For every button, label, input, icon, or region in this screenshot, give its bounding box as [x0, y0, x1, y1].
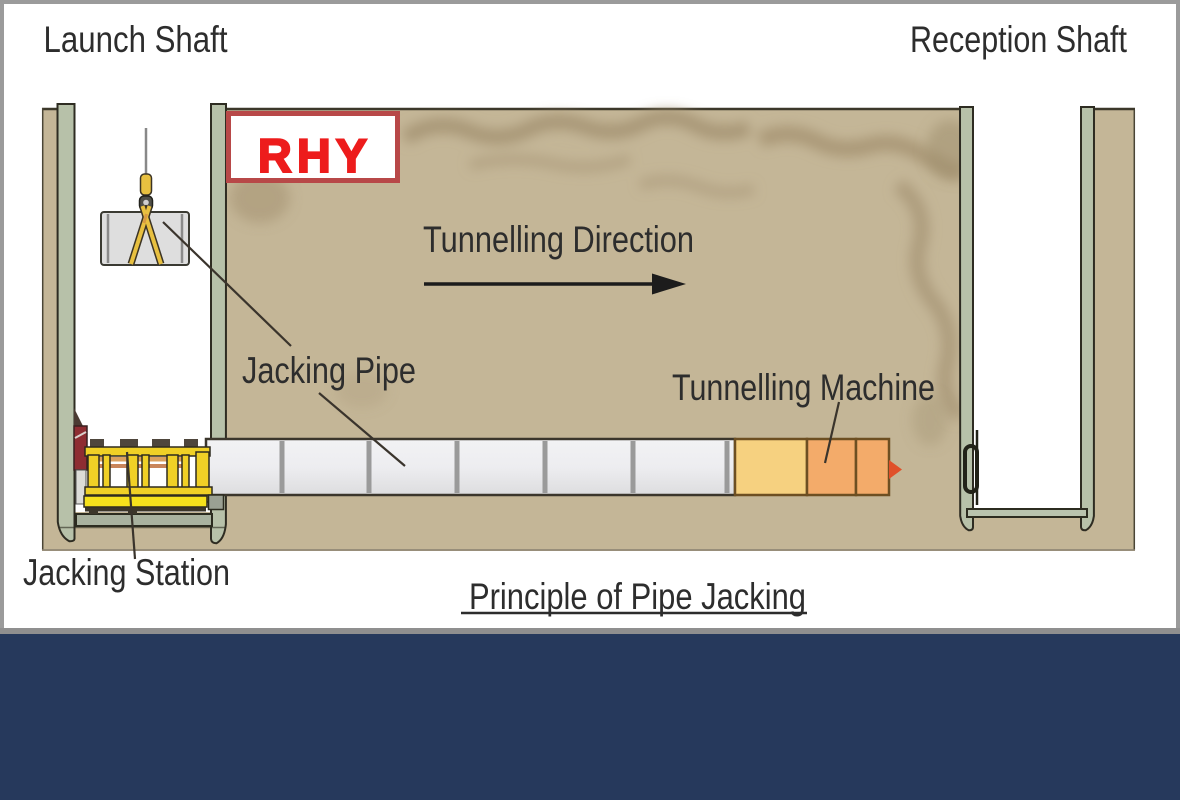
svg-text:Principle of Pipe Jacking: Principle of Pipe Jacking: [469, 576, 806, 617]
svg-text:Jacking Pipe: Jacking Pipe: [242, 350, 416, 391]
svg-text:Reception Shaft: Reception Shaft: [910, 19, 1128, 60]
svg-text:Jacking Station: Jacking Station: [23, 552, 230, 593]
svg-text:Launch Shaft: Launch Shaft: [44, 19, 229, 60]
svg-text:Tunnelling Machine: Tunnelling Machine: [672, 367, 935, 408]
svg-text:RHY: RHY: [258, 129, 372, 182]
svg-text:Tunnelling Direction: Tunnelling Direction: [423, 219, 694, 260]
